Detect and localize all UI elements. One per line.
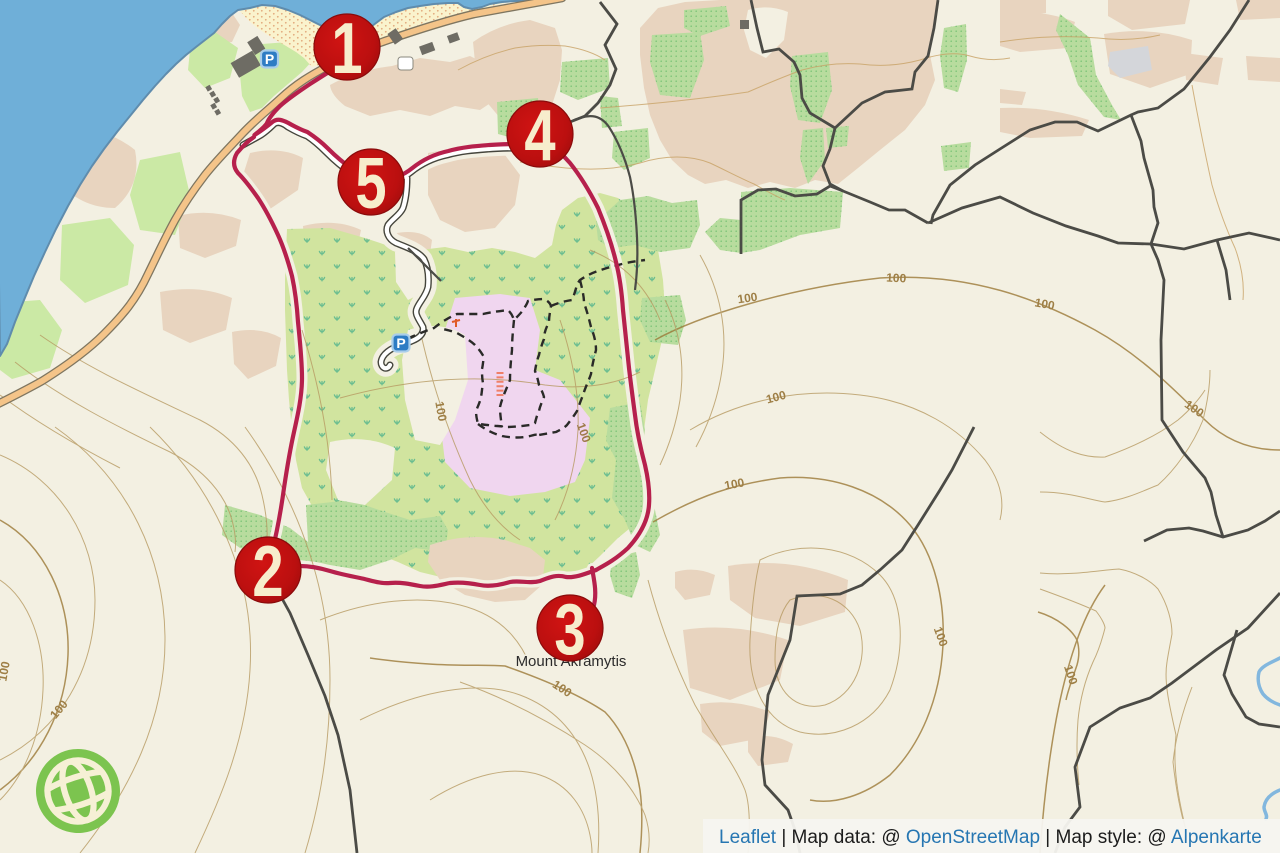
svg-text:2: 2 <box>252 531 283 611</box>
svg-text:P: P <box>396 335 405 351</box>
svg-text:100: 100 <box>737 290 759 307</box>
svg-text:Leaflet | Map data: @ OpenStre: Leaflet | Map data: @ OpenStreetMap | Ma… <box>719 827 1262 848</box>
svg-text:100: 100 <box>886 270 907 285</box>
svg-text:3: 3 <box>554 589 585 669</box>
svg-text:P: P <box>265 51 274 67</box>
svg-text:5: 5 <box>355 143 386 223</box>
svg-text:1: 1 <box>331 8 362 88</box>
svg-text:4: 4 <box>524 95 555 175</box>
